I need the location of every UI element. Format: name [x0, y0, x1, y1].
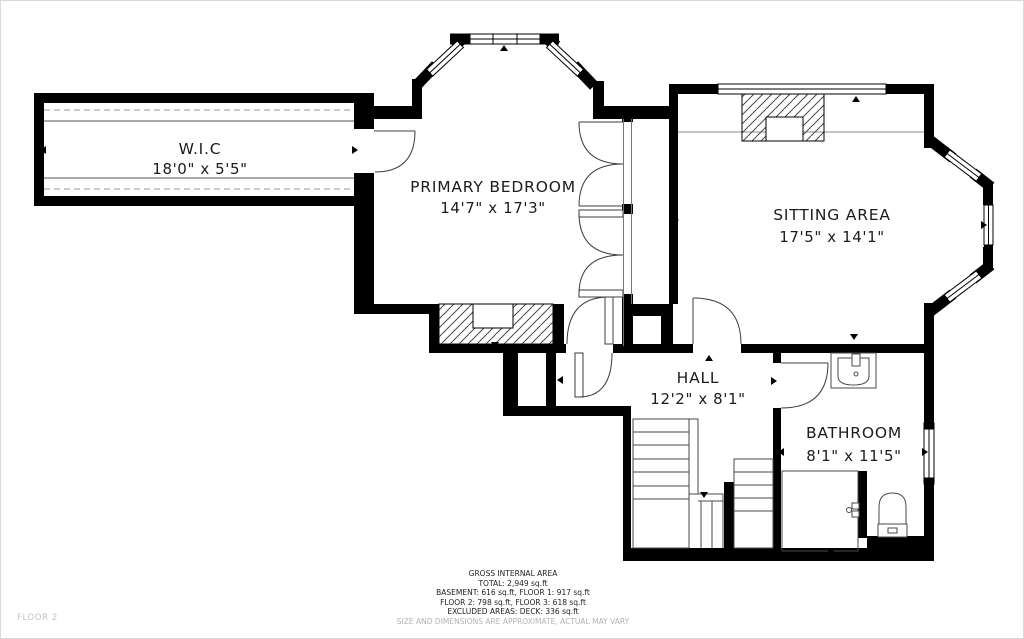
- window: [944, 271, 981, 302]
- door-arc: [693, 298, 741, 344]
- room-label-primary-bedroom: PRIMARY BEDROOM: [410, 178, 576, 196]
- room-dims-primary-bedroom: 14'7" x 17'3": [440, 199, 546, 217]
- door-arc: [579, 122, 623, 206]
- area-summary: GROSS INTERNAL AREA TOTAL: 2,949 sq.ft B…: [263, 569, 763, 627]
- door-arc: [781, 363, 828, 408]
- area-summary-line3: EXCLUDED AREAS: DECK: 336 sq.ft: [263, 607, 763, 617]
- area-summary-line1: BASEMENT: 616 sq.ft, FLOOR 1: 917 sq.ft: [263, 588, 763, 598]
- window: [944, 150, 981, 181]
- door-arc: [374, 131, 415, 172]
- room-dims-wic: 18'0" x 5'5": [152, 160, 247, 178]
- room-label-sitting-area: SITTING AREA: [773, 206, 891, 224]
- floor-plan-drawing: W.I.C 18'0" x 5'5" PRIMARY BEDROOM 14'7"…: [1, 1, 1024, 639]
- window: [427, 41, 464, 76]
- sink-icon: [831, 353, 876, 388]
- door-arc: [567, 297, 613, 344]
- shower-icon: [782, 471, 859, 551]
- area-summary-disclaimer: SIZE AND DIMENSIONS ARE APPROXIMATE, ACT…: [263, 617, 763, 627]
- fireplace-bedroom: [439, 304, 553, 344]
- room-label-hall: HALL: [677, 369, 720, 387]
- room-label-wic: W.I.C: [179, 140, 222, 158]
- toilet-icon: [878, 493, 907, 537]
- window: [718, 84, 886, 94]
- floor-plan-page: W.I.C 18'0" x 5'5" PRIMARY BEDROOM 14'7"…: [0, 0, 1024, 639]
- stairs-icon: [633, 419, 773, 548]
- window: [547, 41, 584, 76]
- area-summary-title: GROSS INTERNAL AREA: [263, 569, 763, 579]
- fireplace-sitting: [742, 94, 824, 141]
- room-dims-bathroom: 8'1" x 11'5": [806, 447, 901, 465]
- room-dims-sitting-area: 17'5" x 14'1": [779, 228, 885, 246]
- area-summary-total: TOTAL: 2,949 sq.ft: [263, 579, 763, 589]
- window: [470, 34, 540, 44]
- room-dims-hall: 12'2" x 8'1": [650, 390, 745, 408]
- door-arc: [575, 353, 612, 397]
- doors: [374, 119, 828, 408]
- area-summary-line2: FLOOR 2: 798 sq.ft, FLOOR 3: 618 sq.ft: [263, 598, 763, 608]
- floor-label: FLOOR 2: [17, 613, 58, 623]
- windows: [427, 34, 993, 484]
- room-label-bathroom: BATHROOM: [806, 424, 902, 442]
- door-arc: [579, 210, 623, 297]
